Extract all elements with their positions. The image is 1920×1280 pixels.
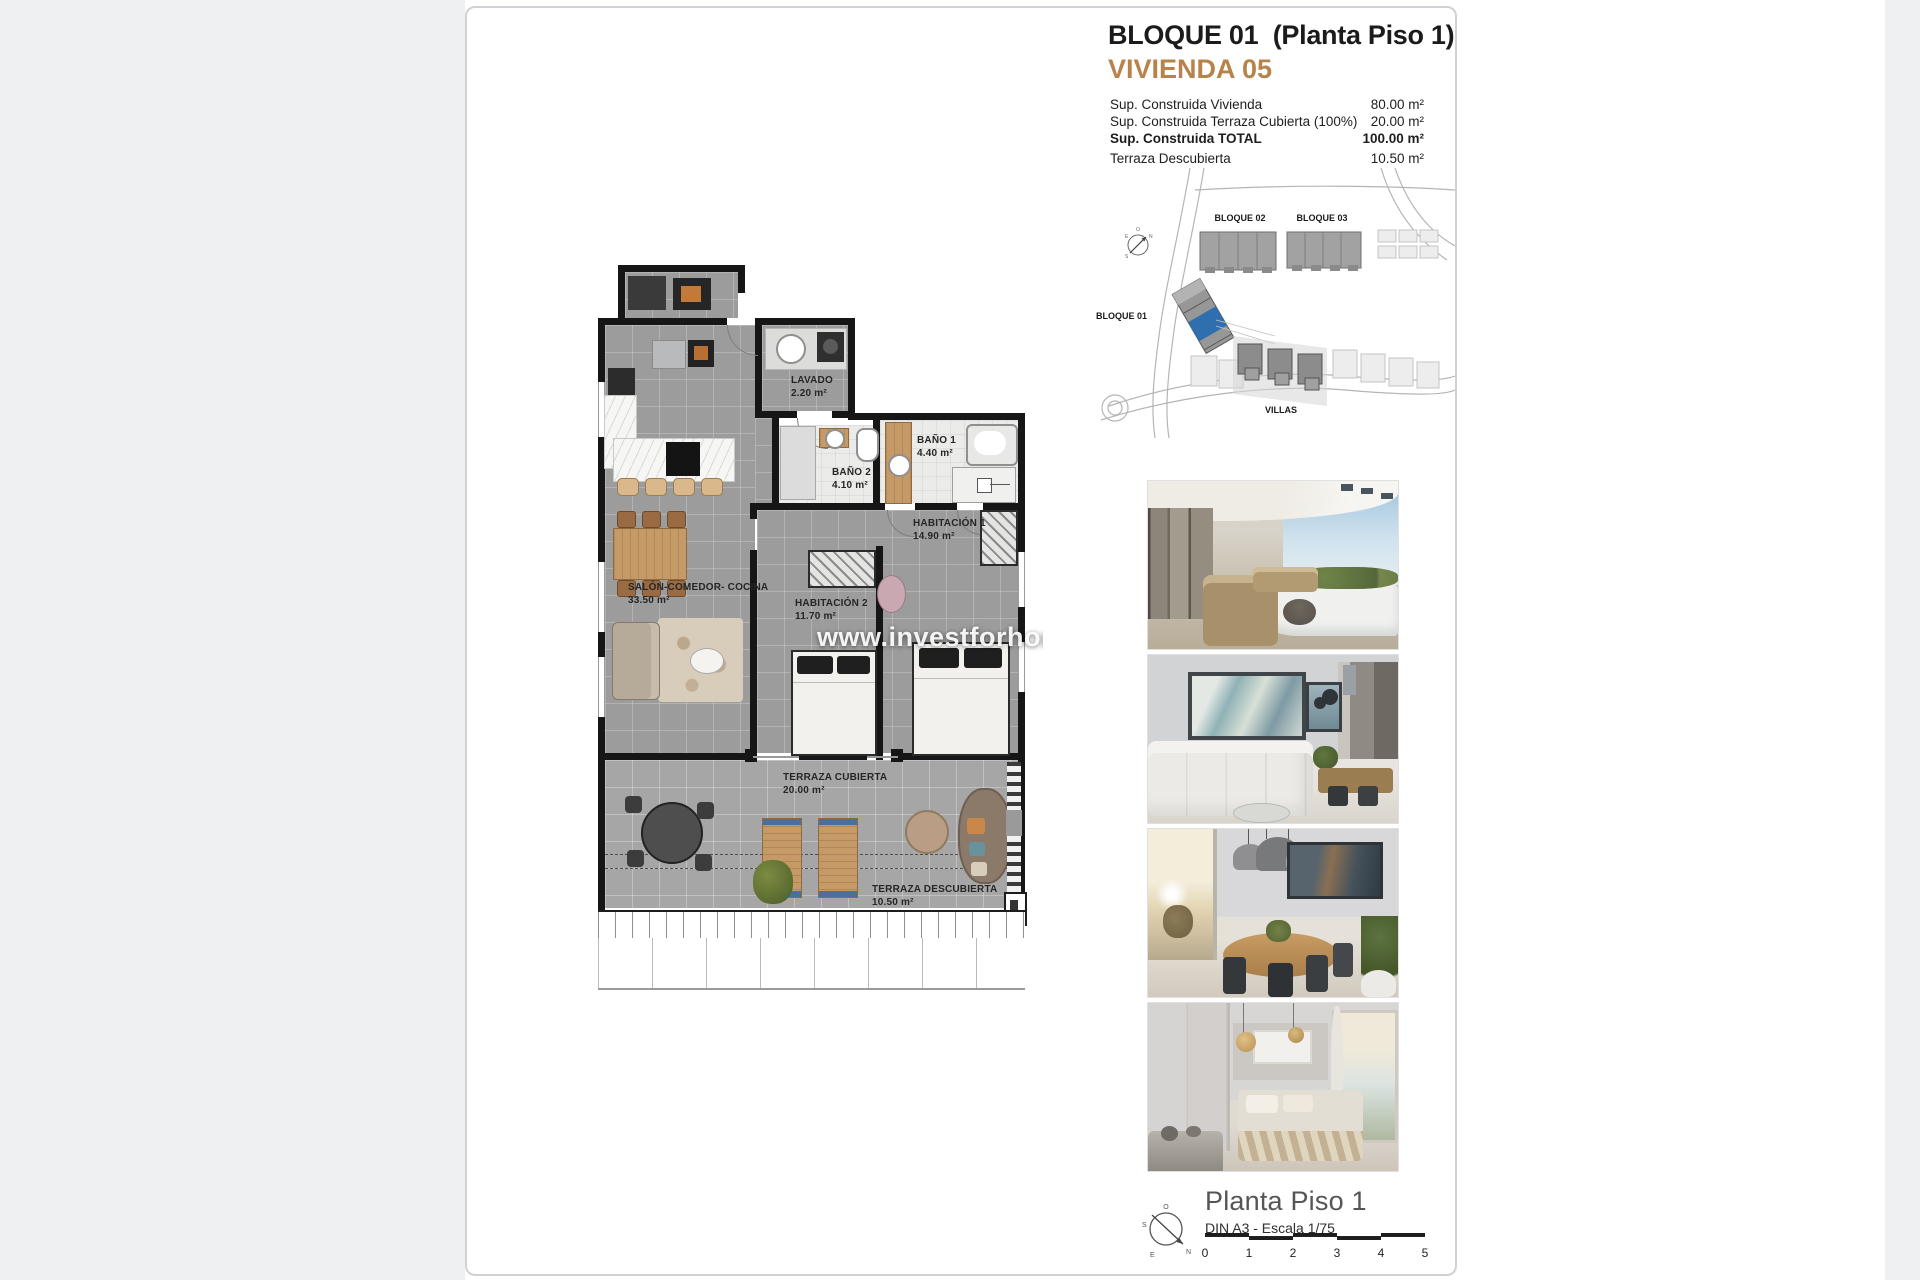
surface-value: 80.00 m²: [1371, 97, 1424, 112]
window: [1018, 552, 1025, 607]
room-label-lavado: LAVADO 2.20 m²: [791, 375, 833, 400]
planter: [1361, 970, 1396, 997]
scale-tick: 5: [1415, 1246, 1435, 1260]
compass-n: N: [1186, 1249, 1191, 1256]
room-label-habitacion1: HABITACIÓN 1 14.90 m²: [913, 518, 986, 543]
washer-door: [823, 339, 838, 354]
footer-title: Planta Piso 1: [1205, 1186, 1367, 1217]
kitchen-unit: [608, 368, 635, 395]
scale-tick: 1: [1239, 1246, 1259, 1260]
scale-tick: 2: [1283, 1246, 1303, 1260]
side-table: [905, 810, 949, 854]
rattan-pendant: [1236, 1032, 1256, 1052]
oven-glow: [681, 286, 701, 302]
kitchen-tall-unit: [628, 276, 666, 310]
pendant-cord: [1266, 829, 1267, 839]
scale-tick: 3: [1327, 1246, 1347, 1260]
dining-chair: [642, 511, 661, 528]
bar-stool: [645, 478, 667, 496]
basin: [825, 429, 845, 449]
wall: [915, 503, 957, 510]
plant: [753, 860, 793, 904]
terrace-sofa: [958, 788, 1012, 884]
document-canvas: BLOQUE 01 (Planta Piso 1) VIVIENDA 05 Su…: [0, 0, 1920, 1280]
photo-terrace: [1148, 481, 1398, 649]
room-label-terraza-descubierta: TERRAZA DESCUBIERTA 10.50 m²: [872, 884, 997, 909]
terrace-railing: [598, 910, 1025, 939]
chair: [1306, 955, 1329, 992]
armchair: [877, 575, 906, 613]
site-label-villas: VILLAS: [1265, 405, 1297, 415]
pillow: [1246, 1095, 1279, 1113]
surface-label: Terraza Descubierta: [1110, 151, 1231, 166]
floor-plan: LAVADO 2.20 m² BAÑO 2 4.10 m² BAÑO 1 4.4…: [595, 262, 1043, 992]
striped-throw: [1238, 1131, 1363, 1161]
scale-segment: [1337, 1237, 1381, 1240]
terrace-table: [641, 802, 703, 864]
dining-chair: [1328, 786, 1348, 806]
wall: [848, 318, 855, 418]
terrace-chair: [697, 802, 714, 819]
photo-living-room: [1148, 655, 1398, 823]
compass-e: E: [1150, 1252, 1155, 1259]
centerpiece-plant: [1266, 920, 1291, 942]
site-villas: [1233, 336, 1327, 406]
bar-stool: [617, 478, 639, 496]
wall: [618, 265, 625, 323]
photo-bedroom: [1148, 1003, 1398, 1171]
round-table: [1283, 599, 1316, 626]
surface-value: 10.50 m²: [1371, 151, 1424, 166]
bar-stool: [701, 478, 723, 496]
surface-row-total: Sup. Construida TOTAL 100.00 m²: [1110, 131, 1424, 148]
terrace-door: [867, 756, 898, 758]
balustrade-post: [1006, 810, 1022, 836]
wall: [750, 503, 757, 519]
fridge: [652, 340, 686, 369]
window: [598, 657, 605, 717]
scale-segment: [1381, 1233, 1425, 1236]
bed: [912, 642, 1010, 756]
bathtub: [966, 424, 1018, 466]
rattan-pendant: [1288, 1027, 1304, 1043]
compass-s: S: [1142, 1222, 1147, 1229]
decor-bowl: [1186, 1126, 1201, 1138]
lower-floor-posts: [598, 938, 1025, 990]
compass-o: O: [1136, 227, 1140, 233]
unit-subtitle: VIVIENDA 05: [1108, 54, 1272, 85]
bed: [791, 650, 877, 756]
pendant-cord: [1243, 1003, 1244, 1033]
oven-window: [694, 346, 708, 360]
terrace-door: [753, 756, 799, 758]
surface-row: Terraza Descubierta 10.50 m²: [1110, 151, 1424, 168]
dining-chair: [1358, 786, 1378, 806]
wall: [755, 318, 855, 325]
terrace-furniture-glimpse: [1163, 905, 1193, 939]
room-label-habitacion2: HABITACIÓN 2 11.70 m²: [795, 598, 868, 623]
dining-chair: [667, 511, 686, 528]
toilet: [856, 428, 879, 462]
foreground-table: [1148, 1131, 1223, 1171]
surface-row: Sup. Construida Terraza Cubierta (100%) …: [1110, 114, 1424, 131]
decor-bowl: [1161, 1126, 1179, 1141]
surface-row: Sup. Construida Vivienda 80.00 m²: [1110, 97, 1424, 114]
pendant-cord: [1293, 1003, 1294, 1028]
dining-chair: [617, 511, 636, 528]
terrace-chair: [627, 850, 644, 867]
chair: [1333, 943, 1353, 977]
room-label-bano2: BAÑO 2 4.10 m²: [832, 467, 871, 492]
room-label-salon: SALÓN-COMEDOR- COCINA 33.50 m²: [628, 582, 768, 607]
ceiling-slot: [1361, 488, 1374, 495]
watermark: www.investforhom: [817, 622, 1043, 653]
page-title: BLOQUE 01 (Planta Piso 1): [1108, 20, 1454, 51]
site-label-bloque03: BLOQUE 03: [1296, 213, 1347, 223]
cooktop: [666, 442, 700, 476]
chair: [1268, 963, 1293, 997]
site-label-bloque02: BLOQUE 02: [1214, 213, 1265, 223]
compass-footer-icon: O S N E: [1138, 1200, 1202, 1264]
window: [598, 562, 605, 632]
shower-box: [952, 467, 1016, 503]
wall: [598, 318, 727, 325]
compass-icon: O S N E: [1125, 227, 1153, 260]
compass-e: E: [1125, 234, 1129, 240]
site-building-bloque03: [1287, 232, 1361, 271]
dining-table: [613, 528, 687, 580]
chair: [1223, 957, 1246, 994]
wardrobe: [808, 550, 876, 588]
wicker-sofa-back: [1253, 567, 1318, 592]
surface-label: Sup. Construida Vivienda: [1110, 97, 1262, 112]
surface-value: 20.00 m²: [1371, 114, 1424, 129]
wall: [755, 503, 885, 510]
wall-art: [1287, 842, 1383, 898]
compass-s: S: [1125, 254, 1129, 260]
extractor-hood: [1343, 665, 1356, 695]
bed: [1238, 1090, 1363, 1161]
surface-value: 100.00 m²: [1362, 131, 1424, 146]
site-building-bloque01: [1172, 279, 1234, 354]
compass-o: O: [1163, 1204, 1169, 1211]
terrace-chair: [625, 796, 642, 813]
basin: [888, 454, 911, 477]
wall: [598, 753, 754, 760]
site-plan: O S N E BLOQUE 02 BLOQUE 03 BLOQUE 01 VI…: [1095, 168, 1455, 438]
scale-tick: 0: [1195, 1246, 1215, 1260]
coffee-table: [690, 648, 724, 674]
site-building-bloque02: [1200, 232, 1276, 273]
compass-n: N: [1149, 234, 1153, 240]
photo-dining-room: [1148, 829, 1398, 997]
scale-segment: [1205, 1233, 1249, 1236]
scale-bar: [1205, 1236, 1425, 1244]
plant: [1313, 746, 1338, 770]
site-label-bloque01: BLOQUE 01: [1096, 311, 1147, 321]
sun-lounger: [818, 818, 858, 898]
room-label-bano1: BAÑO 1 4.40 m²: [917, 435, 956, 460]
ceiling-slot: [1381, 493, 1394, 500]
coffee-table: [1233, 803, 1290, 823]
ceiling-slot: [1341, 484, 1354, 491]
shower-tray: [780, 426, 816, 500]
wall: [755, 411, 797, 418]
wall: [738, 265, 745, 293]
sofa: [612, 622, 660, 700]
wall: [618, 265, 745, 272]
terrace-dashed-line: [605, 868, 1018, 869]
laundry-sink: [776, 334, 806, 364]
pillow: [1283, 1095, 1313, 1112]
surface-label: Sup. Construida Terraza Cubierta (100%): [1110, 114, 1357, 129]
surface-label: Sup. Construida TOTAL: [1110, 131, 1262, 146]
pendant-light: [1314, 697, 1326, 709]
wall-art: [1188, 672, 1306, 740]
room-label-terraza-cubierta: TERRAZA CUBIERTA 20.00 m²: [783, 772, 887, 797]
scale-segment: [1293, 1233, 1337, 1236]
bar-stool: [673, 478, 695, 496]
scale-tick: 4: [1371, 1246, 1391, 1260]
sofa: [1148, 741, 1313, 817]
wall: [772, 418, 779, 510]
wall: [983, 503, 1025, 510]
terrace-chair: [695, 854, 712, 871]
scale-segment: [1249, 1237, 1293, 1240]
